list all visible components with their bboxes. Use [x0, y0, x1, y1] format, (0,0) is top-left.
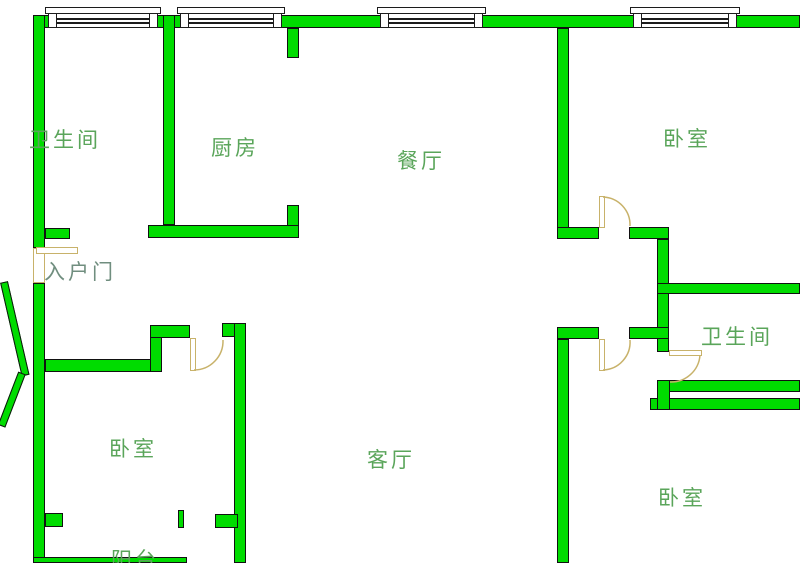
- wall-segment: [163, 15, 175, 225]
- wall-segment: [650, 398, 800, 410]
- window-glass-line: [634, 18, 736, 20]
- window-post: [48, 13, 57, 28]
- wall-segment: [45, 228, 70, 239]
- window: [633, 13, 737, 28]
- room-label-bedroom-bottom-right: 卧室: [658, 482, 706, 512]
- room-label-bedroom-bottom-left: 卧室: [109, 433, 157, 463]
- room-label-bathroom-top-left: 卫生间: [29, 124, 101, 154]
- window-glass-line: [634, 22, 736, 24]
- entry-door-panel: [36, 247, 78, 254]
- wall-segment: [657, 380, 800, 392]
- wall-segment: [629, 327, 669, 339]
- wall-segment: [150, 325, 190, 338]
- window-post: [728, 13, 737, 28]
- window-glass-line: [381, 18, 482, 20]
- room-label-balcony: 阳台: [111, 544, 159, 563]
- door-arcs-layer: [0, 0, 800, 563]
- wall-segment: [33, 557, 187, 563]
- wall-segment: [629, 227, 669, 239]
- wall-segment: [215, 514, 238, 528]
- room-label-bedroom-top-right: 卧室: [663, 123, 711, 153]
- window-glass-line: [49, 18, 157, 20]
- window-glass-line: [381, 22, 482, 24]
- room-label-living-room: 客厅: [367, 444, 415, 474]
- wall-segment: [148, 225, 299, 238]
- window-glass-line: [181, 18, 281, 20]
- bedroom-br-door-arc: [603, 340, 630, 370]
- bedroom-tr-door-arc: [603, 197, 630, 226]
- wall-segment: [45, 513, 63, 527]
- exterior-door-stroke: [0, 372, 26, 428]
- bedroom-bl-door-arc: [194, 340, 223, 370]
- wall-segment: [45, 359, 162, 372]
- room-label-entrance-door: 入户门: [44, 256, 116, 286]
- wall-segment: [557, 327, 599, 339]
- wall-segment: [657, 380, 670, 410]
- wall-segment: [178, 510, 184, 528]
- wall-segment: [557, 339, 569, 563]
- bedroom-bl-door-panel: [190, 338, 196, 371]
- window-post: [474, 13, 483, 28]
- room-label-dining-room: 餐厅: [397, 145, 445, 175]
- bedroom-tr-door-panel: [599, 196, 605, 228]
- window-glass-line: [181, 22, 281, 24]
- wall-segment: [657, 283, 800, 294]
- room-label-bathroom-right: 卫生间: [701, 321, 773, 351]
- wall-segment: [557, 227, 599, 239]
- window: [180, 13, 282, 28]
- room-label-kitchen: 厨房: [211, 132, 259, 162]
- wall-segment: [287, 205, 299, 227]
- exterior-door-stroke: [0, 281, 29, 376]
- bathroom-door-arc: [670, 355, 700, 382]
- window: [48, 13, 158, 28]
- window-post: [633, 13, 642, 28]
- window: [380, 13, 483, 28]
- window-post: [180, 13, 189, 28]
- window-post: [273, 13, 282, 28]
- window-post: [380, 13, 389, 28]
- bathroom-door-panel: [669, 350, 702, 356]
- wall-segment: [33, 283, 45, 563]
- wall-segment: [557, 28, 569, 228]
- wall-segment: [287, 28, 299, 58]
- window-post: [149, 13, 158, 28]
- bedroom-br-door-panel: [599, 339, 605, 371]
- window-glass-line: [49, 22, 157, 24]
- floor-plan: 卫生间厨房餐厅卧室入户门卫生间卧室客厅卧室阳台: [0, 0, 800, 563]
